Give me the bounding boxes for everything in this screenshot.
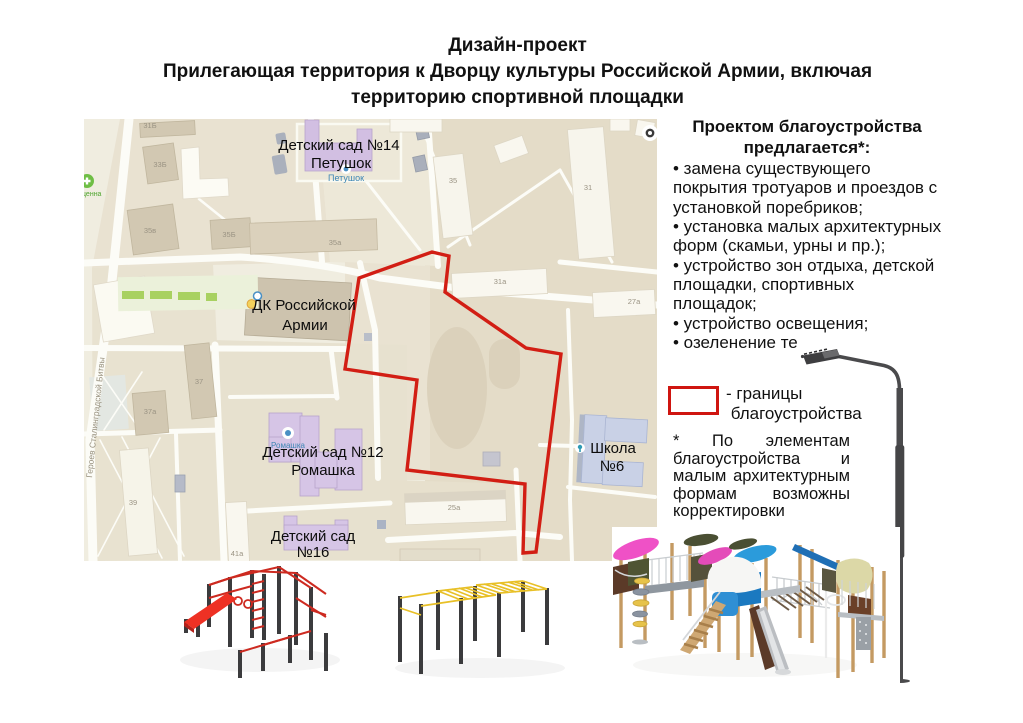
svg-text:35а: 35а — [329, 238, 342, 247]
svg-text:Ромашка: Ромашка — [291, 462, 355, 479]
svg-text:27а: 27а — [628, 297, 641, 306]
svg-text:33Б: 33Б — [153, 160, 166, 169]
svg-text:25а: 25а — [448, 503, 461, 512]
svg-text:Петушок: Петушок — [328, 173, 364, 183]
svg-text:39: 39 — [129, 498, 137, 507]
svg-text:ценна: ценна — [84, 191, 102, 198]
svg-text:31а: 31а — [494, 277, 507, 286]
svg-text:31Б: 31Б — [143, 121, 156, 130]
svg-text:31: 31 — [584, 183, 592, 192]
svg-text:Детский сад: Детский сад — [271, 528, 356, 545]
svg-text:37а: 37а — [144, 407, 157, 416]
svg-text:35: 35 — [449, 176, 457, 185]
svg-text:35Б: 35Б — [222, 230, 235, 239]
svg-text:41а: 41а — [231, 549, 244, 558]
svg-text:Петушок: Петушок — [311, 155, 372, 172]
svg-text:Армии: Армии — [282, 317, 327, 334]
svg-text:Детский сад №14: Детский сад №14 — [278, 137, 399, 154]
svg-text:Школа: Школа — [590, 440, 636, 457]
svg-text:№6: №6 — [600, 458, 624, 475]
svg-text:35в: 35в — [144, 226, 156, 235]
svg-text:37: 37 — [195, 377, 203, 386]
svg-text:Детский сад №12: Детский сад №12 — [262, 444, 383, 461]
svg-text:ДК Российской: ДК Российской — [252, 297, 355, 314]
